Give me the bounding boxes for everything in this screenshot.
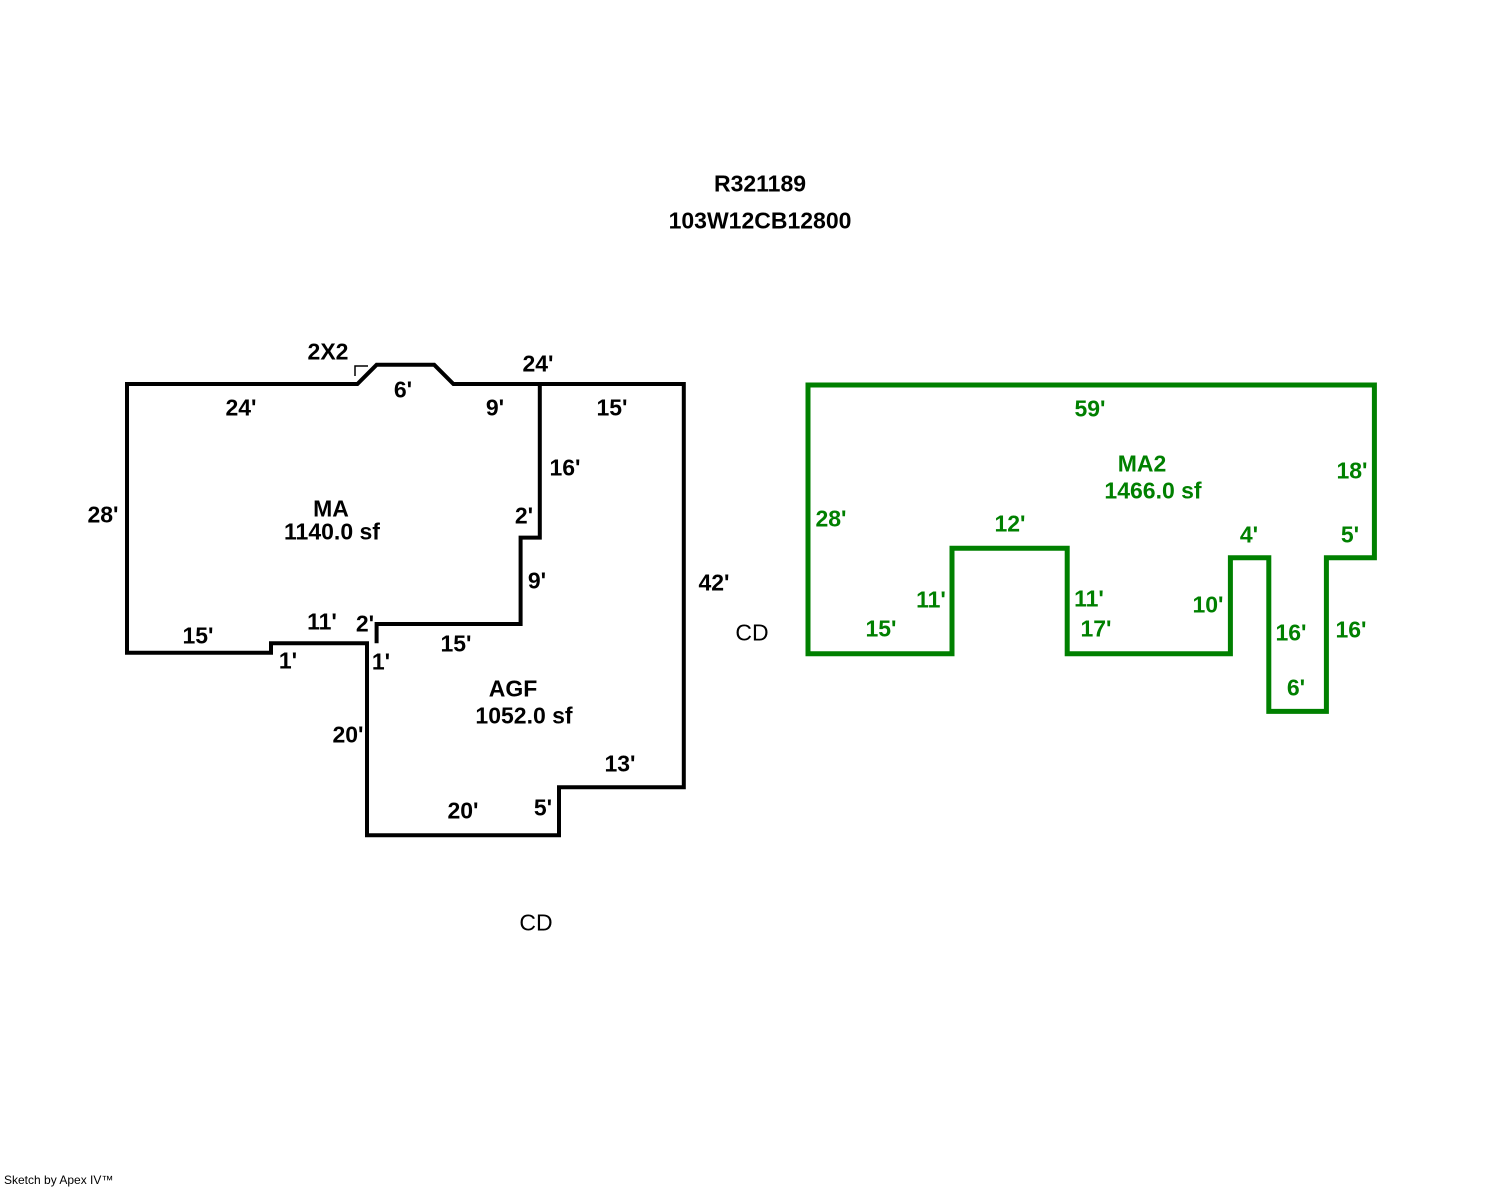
dimension-label: 6' <box>394 379 412 402</box>
area-label: MA <box>313 498 349 521</box>
dimension-label: 17' <box>1080 618 1111 641</box>
area-label: MA2 <box>1118 453 1167 476</box>
dimension-label: 16' <box>549 457 580 480</box>
dimension-label: 15' <box>440 633 471 656</box>
dimension-label: 11' <box>916 589 946 612</box>
dimension-label: 15' <box>865 618 896 641</box>
outer-perimeter <box>127 365 684 835</box>
dimension-label: 4' <box>1240 524 1258 547</box>
area-label: 1140.0 sf <box>284 521 380 544</box>
dimension-label: 11' <box>1074 588 1104 611</box>
cd-label: CD <box>735 622 768 645</box>
dimension-label: 2X2 <box>308 341 349 364</box>
dimension-label: 59' <box>1074 398 1105 421</box>
dimension-label: 2' <box>515 505 533 528</box>
dimension-label: 28' <box>87 504 118 527</box>
area-label: 1052.0 sf <box>475 705 572 728</box>
dimension-label: 5' <box>534 797 552 820</box>
dimension-label: 1' <box>279 650 297 673</box>
dimension-label: 20' <box>447 800 478 823</box>
dimension-label: 42' <box>698 572 729 595</box>
dimension-label: 16' <box>1275 622 1306 645</box>
parcel-id: 103W12CB12800 <box>669 208 852 235</box>
cd-label: CD <box>519 912 552 935</box>
dimension-label: 9' <box>528 570 546 593</box>
dimension-label: 16' <box>1335 619 1366 642</box>
ma2-perimeter <box>808 385 1374 711</box>
dimension-label: 6' <box>1287 677 1305 700</box>
dimension-label: 20' <box>332 724 363 747</box>
dimension-label: 24' <box>225 397 256 420</box>
sketch-credit: Sketch by Apex IV™ <box>4 1173 113 1187</box>
dimension-label: 9' <box>486 397 504 420</box>
record-number: R321189 <box>714 171 806 198</box>
dimension-label: 24' <box>522 353 553 376</box>
dimension-label: 1' <box>372 651 390 674</box>
dimension-label: 10' <box>1192 594 1223 617</box>
dimension-label: 28' <box>815 508 846 531</box>
dimension-label: 12' <box>994 513 1025 536</box>
area-label: AGF <box>489 678 538 701</box>
dimension-label: 13' <box>604 753 635 776</box>
area-label: 1466.0 sf <box>1104 480 1201 503</box>
sketch-canvas: R321189 103W12CB12800 MA1140.0 sfAGF1052… <box>0 0 1488 1190</box>
dimension-label: 15' <box>596 397 627 420</box>
dimension-label: 18' <box>1336 460 1367 483</box>
dimension-label: 11' <box>307 611 337 634</box>
dimension-label: 15' <box>182 625 213 648</box>
dimension-label: 5' <box>1341 524 1359 547</box>
dimension-label: 2' <box>356 613 374 636</box>
